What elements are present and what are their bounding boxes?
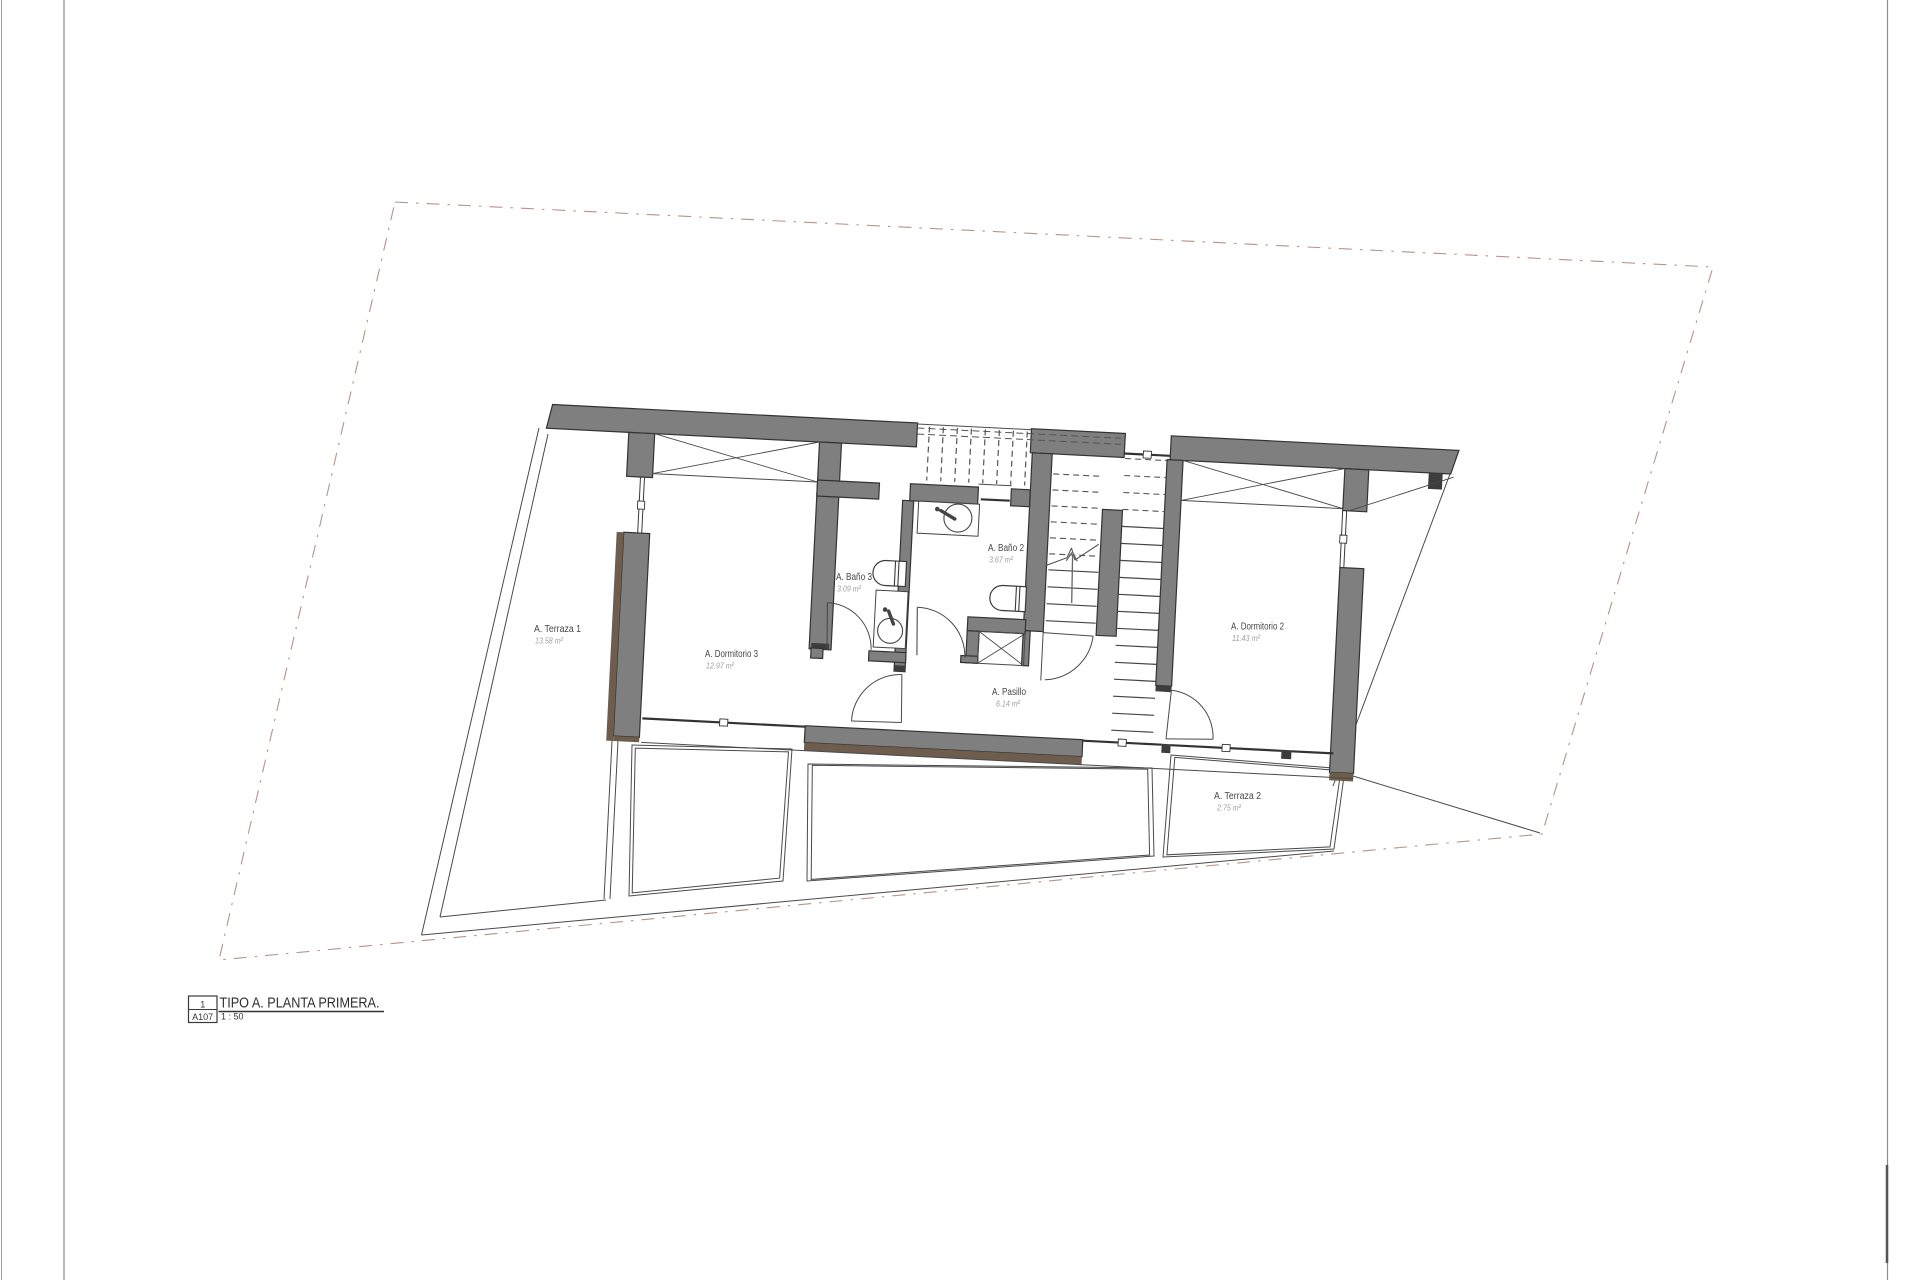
- svg-text:6.14 m²: 6.14 m²: [996, 699, 1021, 709]
- svg-text:A. Terraza 1: A. Terraza 1: [534, 624, 581, 635]
- svg-text:A. Baño 3: A. Baño 3: [836, 572, 872, 583]
- svg-text:A. Dormitorio 2: A. Dormitorio 2: [1231, 622, 1284, 633]
- svg-text:11.43 m²: 11.43 m²: [1232, 633, 1261, 643]
- svg-text:A107: A107: [192, 1012, 213, 1022]
- svg-text:A. Dormitorio 3: A. Dormitorio 3: [705, 649, 758, 660]
- svg-text:3.09 m²: 3.09 m²: [837, 584, 862, 594]
- svg-text:TIPO A. PLANTA PRIMERA.: TIPO A. PLANTA PRIMERA.: [220, 995, 380, 1012]
- svg-text:A. Pasillo: A. Pasillo: [992, 687, 1026, 698]
- svg-text:A. Baño 2: A. Baño 2: [988, 543, 1024, 554]
- svg-text:12.97 m²: 12.97 m²: [706, 661, 735, 671]
- svg-text:1 : 50: 1 : 50: [221, 1012, 244, 1022]
- svg-text:13.58 m²: 13.58 m²: [535, 636, 564, 646]
- svg-text:A. Terraza 2: A. Terraza 2: [1214, 791, 1261, 802]
- svg-text:1: 1: [200, 999, 205, 1009]
- svg-text:2.75 m²: 2.75 m²: [1216, 803, 1242, 813]
- svg-text:3.67 m²: 3.67 m²: [989, 555, 1014, 565]
